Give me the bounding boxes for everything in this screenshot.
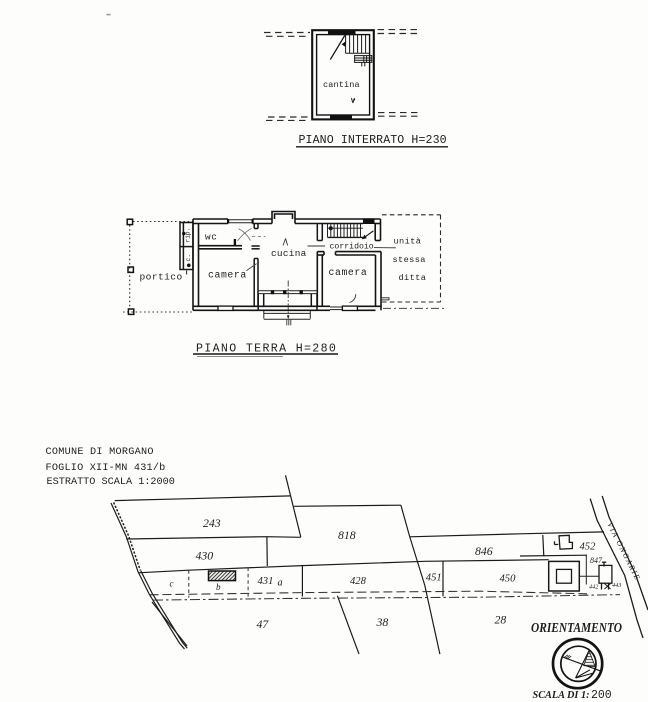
svg-text:a: a: [278, 578, 283, 589]
svg-text:b: b: [216, 582, 221, 592]
svg-text:450: 450: [500, 574, 517, 585]
svg-text:47: 47: [257, 617, 270, 631]
svg-text:stessa: stessa: [393, 255, 426, 265]
svg-text:431: 431: [258, 576, 274, 587]
svg-text:SCALA DI 1:: SCALA DI 1:: [533, 689, 590, 701]
svg-text:unità: unità: [394, 237, 422, 247]
svg-text:442: 442: [589, 584, 598, 591]
svg-text:452: 452: [580, 542, 597, 553]
svg-text:443: 443: [612, 582, 621, 589]
svg-text:FOGLIO XII-MN 431/b: FOGLIO XII-MN 431/b: [46, 462, 166, 474]
svg-text:ORIENTAMENTO: ORIENTAMENTO: [531, 620, 622, 635]
svg-text:847: 847: [590, 556, 603, 565]
svg-text:wc: wc: [205, 232, 217, 243]
svg-text:c: c: [170, 578, 174, 588]
svg-text:camera: camera: [329, 267, 368, 278]
svg-text:cantina: cantina: [323, 80, 360, 90]
svg-text:200: 200: [591, 689, 612, 702]
svg-text:ESTRATTO SCALA 1:2000: ESTRATTO SCALA 1:2000: [47, 477, 175, 488]
svg-text:COMUNE DI MORGANO: COMUNE DI MORGANO: [46, 447, 154, 458]
svg-text:428: 428: [350, 576, 367, 587]
svg-text:cucina: cucina: [271, 248, 307, 259]
svg-text:451: 451: [426, 572, 442, 583]
svg-text:ditta: ditta: [399, 273, 427, 283]
svg-text:818: 818: [338, 528, 356, 542]
svg-text:corridoio: corridoio: [330, 241, 374, 251]
svg-text:PIANO INTERRATO H=230: PIANO INTERRATO H=230: [299, 134, 447, 147]
svg-text:rip.: rip.: [184, 228, 191, 243]
svg-text:c.: c.: [185, 254, 192, 261]
svg-text:portico: portico: [140, 272, 183, 283]
svg-text:28: 28: [495, 613, 507, 627]
svg-text:38: 38: [376, 615, 389, 629]
svg-text:243: 243: [203, 516, 221, 530]
svg-text:430: 430: [196, 548, 214, 562]
svg-text:camera: camera: [208, 270, 247, 281]
svg-text:846: 846: [475, 544, 493, 558]
